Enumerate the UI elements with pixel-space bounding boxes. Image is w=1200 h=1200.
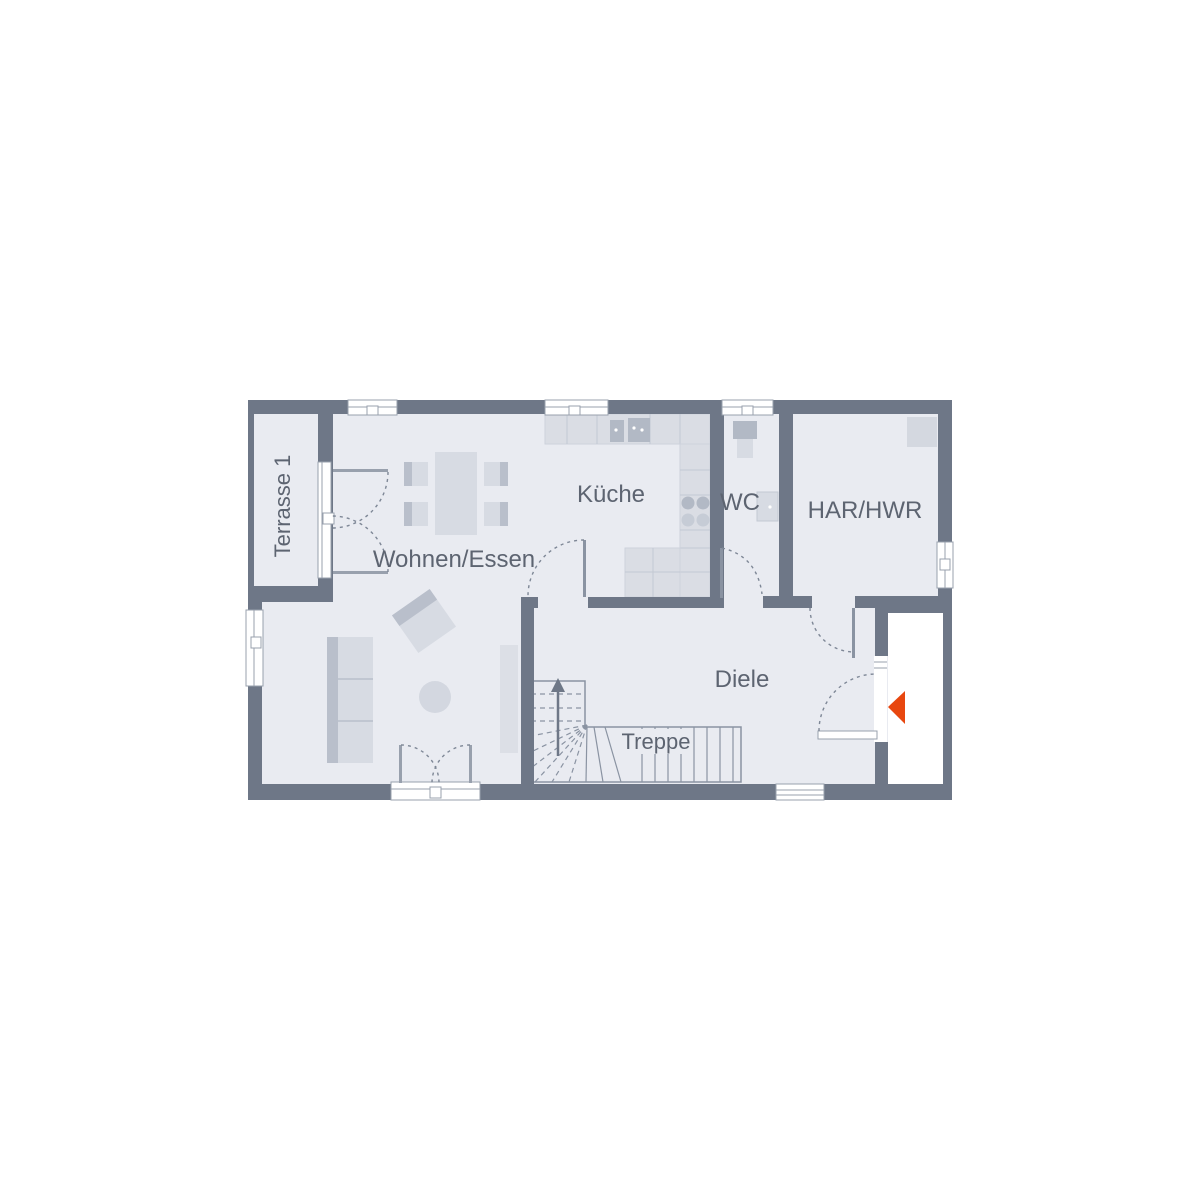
sofa (327, 637, 373, 763)
floor-plan-drawing (0, 0, 1200, 1200)
room-label-terrace: Terrasse 1 (271, 436, 295, 576)
room-label-living-dining: Wohnen/Essen (354, 546, 554, 574)
tv-sideboard (500, 645, 518, 753)
window-living-left (246, 610, 263, 686)
window-wc-top (722, 400, 773, 415)
utility-appliance (907, 417, 937, 447)
window-hall-bottom (776, 784, 824, 800)
entrance-porch (888, 613, 943, 784)
window-kitchen-top (545, 400, 608, 415)
room-label-stairs: Treppe (556, 729, 756, 755)
window-utility-right (937, 542, 953, 588)
room-label-hallway: Diele (642, 666, 842, 694)
floor-plan-canvas: Terrasse 1 Wohnen/Essen Küche WC HAR/HWR… (0, 0, 1200, 1200)
kitchen-appliance (628, 418, 650, 442)
window-living-top (348, 400, 397, 415)
room-label-utility: HAR/HWR (765, 497, 965, 525)
coffee-table (419, 681, 451, 713)
